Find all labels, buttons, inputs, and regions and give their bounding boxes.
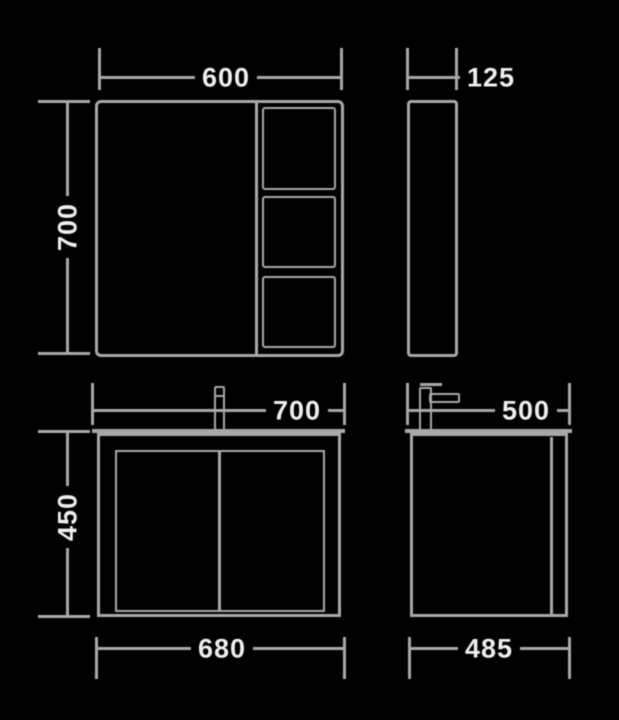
dim-extension-line	[568, 383, 571, 425]
vanity-side-back-panel-line	[550, 437, 553, 614]
dim-extension-line	[38, 430, 90, 433]
dim-extension-line	[406, 48, 409, 90]
faucet-front-detail	[214, 395, 225, 397]
vanity-door-divider	[218, 450, 221, 612]
dim-extension-line	[568, 637, 571, 679]
dim-label-vanity-base-width: 680	[191, 635, 253, 664]
technical-drawing-canvas: 600 700 125 700 450	[0, 0, 619, 720]
faucet-side-spout	[429, 393, 460, 403]
vanity-countertop-side	[405, 429, 572, 433]
dim-label-mirror-width: 600	[195, 64, 257, 93]
dim-extension-line	[95, 637, 98, 679]
vanity-cabinet-side-outline	[410, 433, 568, 617]
dim-extension-line	[98, 48, 101, 90]
shelf-compartment-middle	[262, 196, 336, 268]
dim-extension-line	[38, 100, 90, 103]
faucet-side-handle	[420, 383, 442, 386]
dim-label-mirror-height: 700	[54, 196, 83, 258]
shelf-compartment-top	[262, 107, 336, 190]
dim-extension-line	[38, 615, 90, 618]
dim-label-mirror-depth: 125	[460, 64, 522, 93]
dimension-line-mirror-depth	[406, 76, 464, 79]
vanity-countertop-front	[92, 429, 345, 433]
dim-extension-line	[408, 637, 411, 679]
dim-extension-line	[343, 383, 346, 425]
mirror-cabinet-side-outline	[407, 100, 458, 357]
dim-label-vanity-height: 450	[54, 486, 83, 548]
drawing-scene: 600 700 125 700 450	[0, 0, 619, 720]
dim-label-vanity-top-width: 700	[266, 397, 328, 426]
dim-extension-line	[455, 48, 458, 90]
faucet-front	[214, 386, 225, 431]
dim-label-vanity-base-depth: 485	[458, 635, 520, 664]
dim-extension-line	[91, 383, 94, 425]
dim-label-vanity-top-depth: 500	[495, 397, 557, 426]
dim-extension-line	[38, 352, 90, 355]
dim-extension-line	[406, 383, 409, 425]
shelf-compartment-bottom	[262, 276, 336, 348]
dim-extension-line	[340, 48, 343, 90]
mirror-shelf-divider	[255, 101, 258, 356]
dim-extension-line	[343, 637, 346, 679]
